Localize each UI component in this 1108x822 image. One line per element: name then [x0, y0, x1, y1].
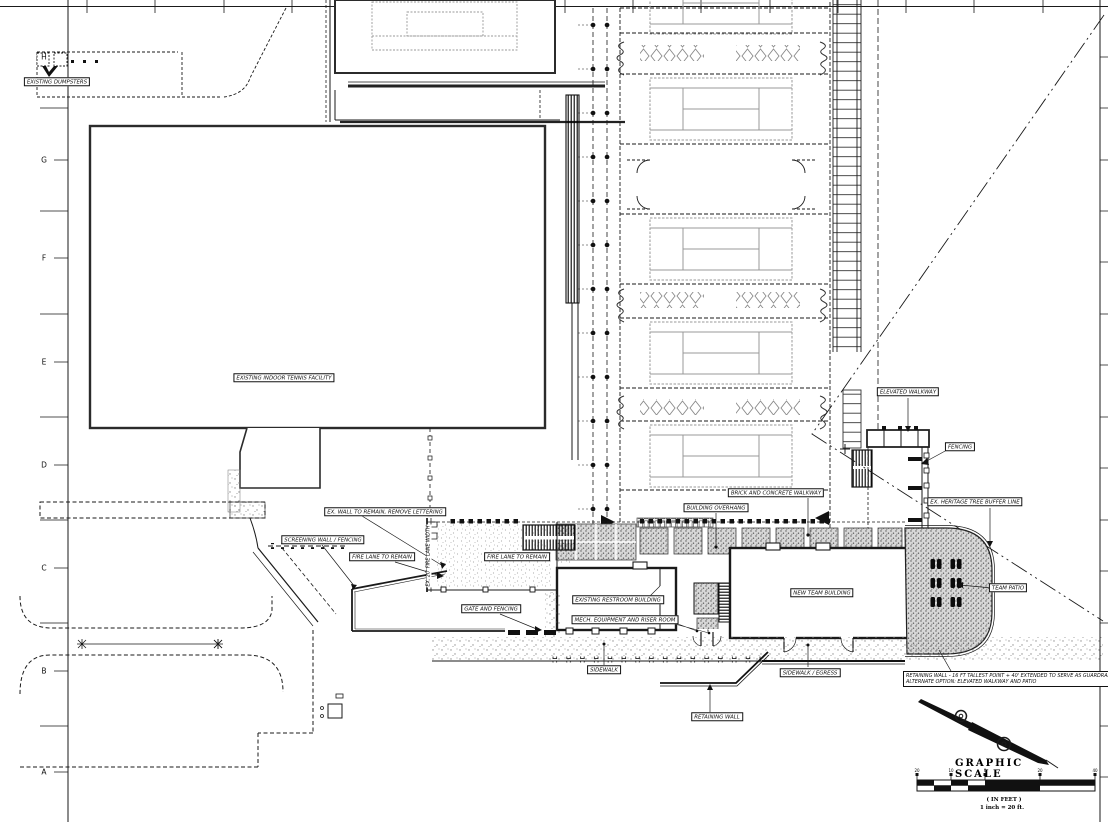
- label-building-overhang: BUILDING OVERHANG: [684, 503, 749, 512]
- grid-row-label: D: [41, 461, 47, 470]
- fire-lane: [427, 428, 575, 600]
- court-gates: [626, 160, 816, 209]
- label-retaining-wall: RETAINING WALL: [691, 712, 743, 721]
- grid-row-label: A: [41, 768, 46, 777]
- upper-building: [326, 0, 625, 122]
- link-corridor: [566, 95, 579, 303]
- stairs: [719, 583, 730, 622]
- outdoor-courts: [601, 0, 830, 530]
- team-patio: [905, 526, 995, 657]
- east-walkway: [833, 0, 872, 487]
- grid-row-label: G: [41, 156, 47, 165]
- scale-tick-label: 20: [1037, 768, 1042, 773]
- label-retaining-wall-alt-line2: ALTERNATE OPTION: ELEVATED WALKWAY AND P…: [906, 679, 1108, 685]
- label-team-patio: TEAM PATIO: [989, 583, 1027, 592]
- indoor-tennis-facility: [90, 126, 545, 512]
- label-ex-wall: EX. WALL TO REMAIN, REMOVE LETTERING: [324, 507, 446, 516]
- label-sidewalk: SIDEWALK: [587, 665, 621, 674]
- scale-tick-label: 10: [948, 768, 953, 773]
- scale-ratio-note: 1 inch = 20 ft.: [980, 805, 1024, 811]
- label-retaining-wall-alt: RETAINING WALL - 16 FT TALLEST POINT + 4…: [903, 671, 1108, 687]
- planting-band: [617, 42, 827, 429]
- grid-row-label: F: [42, 254, 46, 263]
- tree-symbols: [77, 639, 223, 649]
- label-indoor-tennis-facility: EXISTING INDOOR TENNIS FACILITY: [233, 373, 334, 382]
- label-mech-room: MECH. EQUIPMENT AND RISER ROOM: [572, 615, 679, 624]
- label-gate-fencing: GATE AND FENCING: [461, 604, 521, 613]
- grid-row-label: C: [41, 564, 46, 573]
- scale-tick-label: 40: [1092, 768, 1097, 773]
- plan-linework: [0, 0, 1108, 822]
- label-fire-lane-left: FIRE LANE TO REMAIN: [349, 552, 415, 561]
- label-fire-lane-width: EX. 20' FIRE LANE WIDTH: [427, 525, 432, 588]
- gate-and-fencing: [508, 630, 556, 635]
- label-fencing: FENCING: [945, 442, 975, 451]
- dumpster-arrow: [42, 66, 58, 77]
- grid-row-label: B: [41, 667, 46, 676]
- grid-row-label: H: [41, 53, 47, 62]
- label-brick-concrete-walkway: BRICK AND CONCRETE WALKWAY: [728, 488, 824, 497]
- scale-tick-label: 0: [984, 768, 987, 773]
- label-new-team-building: NEW TEAM BUILDING: [790, 588, 853, 597]
- grid-row-label: E: [42, 358, 47, 367]
- site-plan-canvas: H G F E D C B A EXISTING DUMPSTERS EXIST…: [0, 0, 1108, 822]
- label-sidewalk-egress: SIDEWALK / EGRESS: [780, 668, 841, 677]
- label-fire-lane-right: FIRE LANE TO REMAIN: [484, 552, 550, 561]
- label-screening-wall: SCREENING WALL / FENCING: [281, 535, 364, 544]
- label-restroom-building: EXISTING RESTROOM BUILDING: [572, 595, 664, 604]
- label-heritage-tree-buffer: EX. HERITAGE TREE BUFFER LINE: [927, 497, 1022, 506]
- label-existing-dumpsters: EXISTING DUMPSTERS: [24, 77, 90, 86]
- scale-units-note: ( IN FEET ): [987, 797, 1022, 803]
- scale-tick-label: 20: [914, 768, 919, 773]
- label-elevated-walkway: ELEVATED WALKWAY: [877, 387, 939, 396]
